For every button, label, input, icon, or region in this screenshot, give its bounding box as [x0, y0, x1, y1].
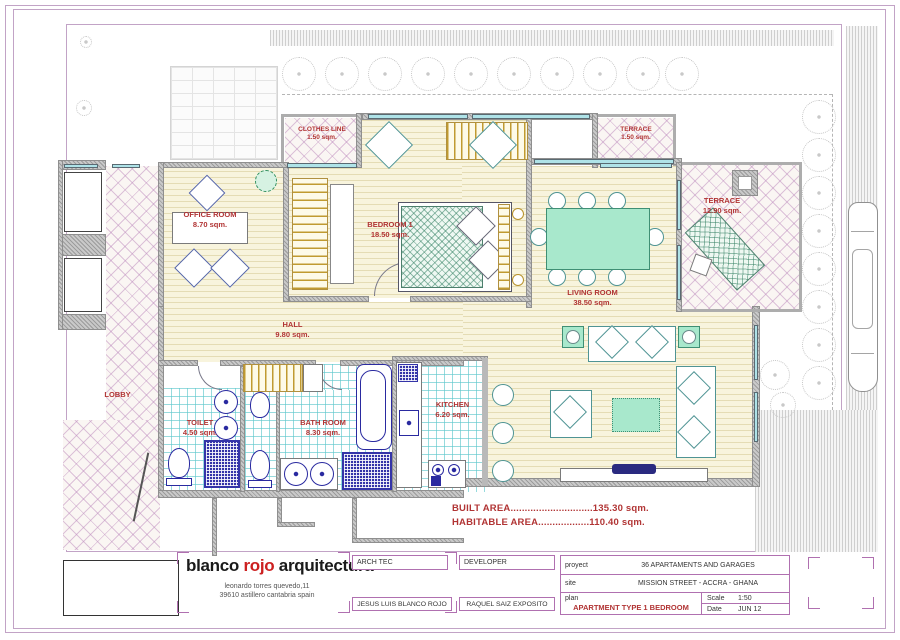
elevator-cab: [64, 258, 102, 312]
plan-cell: plan APARTMENT TYPE 1 BEDROOM: [561, 593, 701, 614]
lobby-lower: [63, 420, 160, 550]
date-value: JUN 12: [738, 606, 761, 613]
dining-table: [546, 208, 650, 270]
wall-segment: [283, 162, 289, 302]
firm-address: leonardo torres quevedo,11 39610 astille…: [184, 582, 350, 601]
window: [112, 164, 140, 168]
bush: [760, 360, 790, 390]
tree: [540, 57, 574, 91]
driveway-hatch: [755, 410, 878, 552]
kitchen-cabinet: [398, 364, 418, 382]
wall-segment: [352, 538, 464, 543]
plan-value: APARTMENT TYPE 1 BEDROOM: [561, 603, 701, 612]
tree: [583, 57, 617, 91]
wall-segment: [158, 360, 198, 366]
car-hood-line: [851, 231, 874, 232]
bar-counter: [482, 358, 488, 486]
wall-segment: [58, 160, 63, 330]
car-trunk-line: [851, 353, 874, 354]
car-cabin: [852, 249, 873, 329]
room-name: TERRACE: [598, 126, 674, 134]
registration-mark: [808, 557, 820, 569]
sink: [310, 462, 334, 486]
address-line1: leonardo torres quevedo,11: [184, 582, 350, 591]
hall-closet: [243, 364, 303, 392]
elevator-cab: [64, 172, 102, 232]
stove-oven: [431, 476, 441, 486]
car: [848, 202, 878, 392]
garden-boundary-line: [832, 94, 833, 410]
bush: [770, 392, 796, 418]
window: [472, 114, 590, 119]
scale-value: 1:50: [738, 595, 752, 602]
terrace-rail: [682, 309, 802, 312]
room-label-toilet: TOILET 4.50 sqm.: [162, 418, 238, 438]
toilet-tank: [248, 480, 272, 488]
plan-label: plan: [565, 595, 578, 602]
bar-stool: [492, 460, 514, 482]
project-label: proyect: [561, 562, 607, 569]
wall-segment: [58, 314, 106, 330]
registration-mark: [177, 552, 189, 564]
plant-pot-ring: [682, 330, 696, 344]
toilet-tank: [166, 478, 192, 486]
room-area: 1.50 sqm.: [284, 134, 360, 142]
registration-mark: [808, 597, 820, 609]
area-summary: BUILT AREA.............................1…: [452, 502, 649, 530]
shower: [204, 440, 240, 488]
room-name: HALL: [250, 320, 335, 330]
terrace-rail: [799, 162, 802, 312]
registration-mark: [338, 601, 350, 613]
developer-label-box: DEVELOPER: [459, 555, 555, 570]
dining-chair: [608, 268, 626, 286]
wall-segment: [58, 234, 106, 256]
room-area: 9.80 sqm.: [250, 330, 335, 340]
terrace-rail: [598, 114, 676, 117]
arch-name: JESUS LUIS BLANCO ROJO: [357, 601, 447, 608]
bed-headboard: [498, 204, 510, 290]
bidet: [250, 392, 270, 418]
built-area-line: BUILT AREA.............................1…: [452, 502, 649, 516]
top-fence-hatch: [270, 30, 834, 46]
wall-segment: [277, 522, 315, 527]
window: [677, 245, 681, 300]
tree: [802, 100, 836, 134]
registration-mark: [862, 597, 874, 609]
room-area: 38.50 sqm.: [545, 298, 640, 308]
bedside-lamp: [512, 274, 524, 286]
wall-segment: [410, 296, 532, 302]
tree: [368, 57, 402, 91]
bush: [76, 100, 92, 116]
room-label-terrace-small: TERRACE 1.50 sqm.: [598, 126, 674, 143]
date-cell: Date JUN 12: [701, 604, 789, 614]
arch-label: ARCH TEC: [357, 559, 393, 566]
dressing-rack: [292, 178, 328, 290]
developer-label: DEVELOPER: [464, 559, 507, 566]
bar-stool: [492, 384, 514, 406]
room-label-lobby: LOBBY: [90, 390, 145, 400]
room-name: LIVING ROOM: [545, 288, 640, 298]
room-label-hall: HALL 9.80 sqm.: [250, 320, 335, 340]
project-row: proyect 36 APARTAMENTS AND GARAGES: [561, 556, 789, 575]
tree: [802, 138, 836, 172]
wall-segment: [158, 162, 289, 168]
address-line2: 39610 astillero cantabria spain: [184, 591, 350, 600]
sink: [284, 462, 308, 486]
toilet-fixture: [168, 448, 190, 478]
tree: [626, 57, 660, 91]
wall-segment: [158, 490, 464, 498]
tree: [282, 57, 316, 91]
stove-burner: [448, 464, 460, 476]
scale-label: Scale: [702, 595, 738, 602]
terrace-column-core: [738, 176, 752, 190]
tree: [325, 57, 359, 91]
site-label: site: [561, 580, 607, 587]
tree: [802, 252, 836, 286]
window: [754, 392, 758, 442]
room-label-bedroom1: BEDROOM 1 18.50 sqm.: [340, 220, 440, 240]
room-area: 6.20 sqm.: [410, 410, 495, 420]
date-label: Date: [702, 606, 738, 613]
habitable-area-line: HABITABLE AREA..................110.40 s…: [452, 516, 649, 530]
registration-mark: [177, 601, 189, 613]
stone-path: [170, 66, 278, 160]
drawing-sheet: OFFICE ROOM 8.70 sqm. CLOTHES LINE 1.50 …: [0, 0, 900, 640]
bush: [80, 36, 92, 48]
room-name: OFFICE ROOM: [160, 210, 260, 220]
tree: [802, 176, 836, 210]
window: [64, 164, 98, 168]
dining-chair: [578, 268, 596, 286]
arch-name-box: JESUS LUIS BLANCO ROJO: [352, 597, 452, 611]
room-area: 18.50 sqm.: [340, 230, 440, 240]
window: [754, 325, 758, 380]
firm-rojo: rojo: [243, 556, 274, 575]
garden-boundary-line: [282, 94, 832, 95]
tv: [612, 464, 656, 474]
tree: [665, 57, 699, 91]
room-area: 8.70 sqm.: [160, 220, 260, 230]
wall-segment: [289, 296, 369, 302]
wall-segment: [352, 498, 357, 542]
office-plant: [255, 170, 277, 192]
terrace-rail: [682, 162, 802, 165]
room-name: BATH ROOM: [282, 418, 364, 428]
bedside-lamp: [512, 208, 524, 220]
lobby-strip: [106, 166, 160, 426]
hall-cabinet: [303, 364, 323, 392]
tree: [411, 57, 445, 91]
room-name: TERRACE: [682, 196, 762, 206]
wall-segment: [158, 162, 164, 316]
tree: [802, 290, 836, 324]
bar-stool: [492, 422, 514, 444]
developer-name-box: RAQUEL SAIZ EXPOSITO: [459, 597, 555, 611]
project-value: 36 APARTAMENTS AND GARAGES: [607, 562, 789, 569]
room-label-kitchen: KITCHEN 6.20 sqm.: [410, 400, 495, 420]
plant-pot-ring: [566, 330, 580, 344]
room-name: CLOTHES LINE: [284, 126, 360, 134]
window: [677, 180, 681, 230]
room-name: TOILET: [162, 418, 238, 428]
room-label-bathroom: BATH ROOM 8.30 sqm.: [282, 418, 364, 438]
stove-burner: [432, 464, 444, 476]
title-table: proyect 36 APARTAMENTS AND GARAGES site …: [560, 555, 790, 615]
arch-label-box: ARCH TEC: [352, 555, 448, 570]
room-label-clothes-line: CLOTHES LINE 1.50 sqm.: [284, 126, 360, 143]
site-row: site MISSION STREET - ACCRA - GHANA: [561, 575, 789, 593]
window: [534, 159, 674, 164]
rug: [612, 398, 660, 432]
tree: [497, 57, 531, 91]
window: [287, 163, 357, 168]
room-area: 12.90 sqm.: [682, 206, 762, 216]
tree: [802, 328, 836, 362]
logo-box: [63, 560, 179, 616]
tree: [802, 214, 836, 248]
terrace-rail: [281, 114, 361, 117]
wall-segment: [392, 356, 488, 361]
registration-mark: [338, 552, 350, 564]
site-value: MISSION STREET - ACCRA - GHANA: [607, 580, 789, 587]
room-area: 4.50 sqm.: [162, 428, 238, 438]
firm-blanco: blanco: [186, 556, 239, 575]
room-name: LOBBY: [90, 390, 145, 400]
room-name: KITCHEN: [410, 400, 495, 410]
scale-cell: Scale 1:50: [701, 593, 789, 604]
room-label-terrace-big: TERRACE 12.90 sqm.: [682, 196, 762, 216]
shower: [342, 452, 392, 490]
room-label-living: LIVING ROOM 38.50 sqm.: [545, 288, 640, 308]
window: [368, 114, 468, 119]
sink: [214, 390, 238, 414]
room-area: 8.30 sqm.: [282, 428, 364, 438]
developer-name: RAQUEL SAIZ EXPOSITO: [466, 601, 547, 608]
dining-chair: [548, 268, 566, 286]
tree: [802, 366, 836, 400]
room-name: BEDROOM 1: [340, 220, 440, 230]
toilet-fixture: [250, 450, 270, 480]
room-area: 1.50 sqm.: [598, 134, 674, 142]
room-label-office: OFFICE ROOM 8.70 sqm.: [160, 210, 260, 230]
wall-segment: [212, 498, 217, 556]
tree: [454, 57, 488, 91]
wall-segment: [158, 306, 164, 498]
registration-mark: [862, 557, 874, 569]
